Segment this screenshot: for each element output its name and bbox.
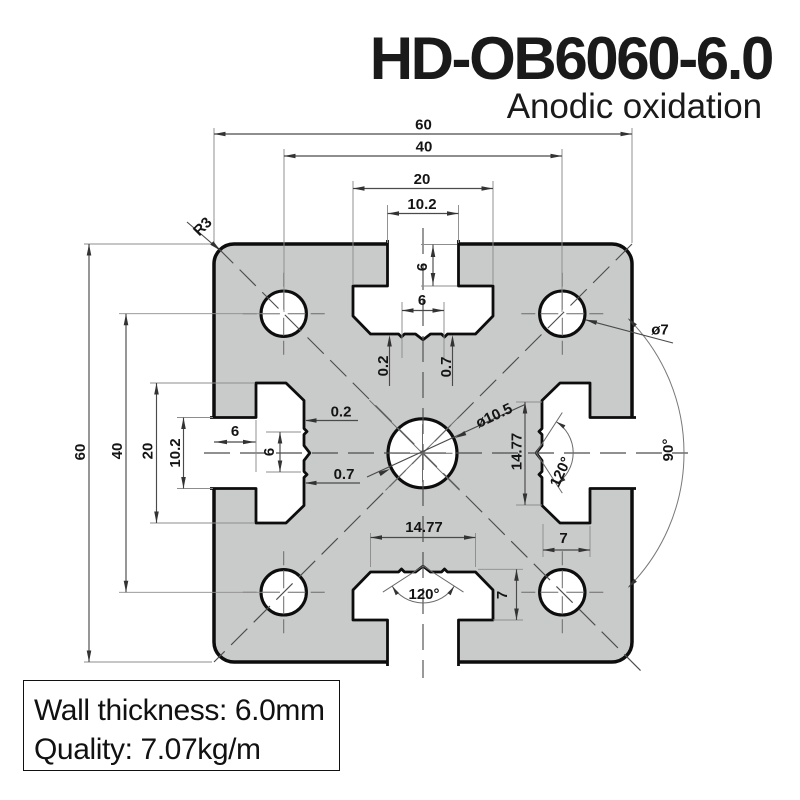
svg-text:14.77: 14.77 bbox=[509, 433, 526, 471]
svg-text:10.2: 10.2 bbox=[407, 196, 436, 213]
svg-text:0.7: 0.7 bbox=[334, 466, 355, 483]
svg-text:120°: 120° bbox=[408, 586, 439, 603]
svg-text:60: 60 bbox=[72, 444, 89, 461]
svg-text:40: 40 bbox=[109, 443, 126, 460]
svg-text:40: 40 bbox=[416, 139, 433, 156]
svg-text:20: 20 bbox=[140, 443, 157, 460]
svg-text:10.2: 10.2 bbox=[167, 438, 184, 467]
svg-text:6: 6 bbox=[418, 292, 426, 309]
svg-text:14.77: 14.77 bbox=[405, 519, 443, 536]
svg-text:ø7: ø7 bbox=[651, 322, 669, 339]
svg-text:6: 6 bbox=[231, 423, 239, 440]
svg-text:20: 20 bbox=[414, 171, 431, 188]
svg-text:0.2: 0.2 bbox=[375, 356, 392, 377]
svg-text:7: 7 bbox=[559, 530, 567, 547]
svg-text:0.7: 0.7 bbox=[438, 357, 455, 378]
svg-text:7: 7 bbox=[494, 591, 511, 599]
svg-text:0.2: 0.2 bbox=[331, 404, 352, 421]
svg-text:60: 60 bbox=[415, 117, 432, 134]
svg-text:6: 6 bbox=[414, 263, 431, 271]
svg-text:R3: R3 bbox=[190, 214, 216, 240]
svg-text:6: 6 bbox=[261, 448, 278, 456]
svg-text:90°: 90° bbox=[660, 439, 677, 462]
